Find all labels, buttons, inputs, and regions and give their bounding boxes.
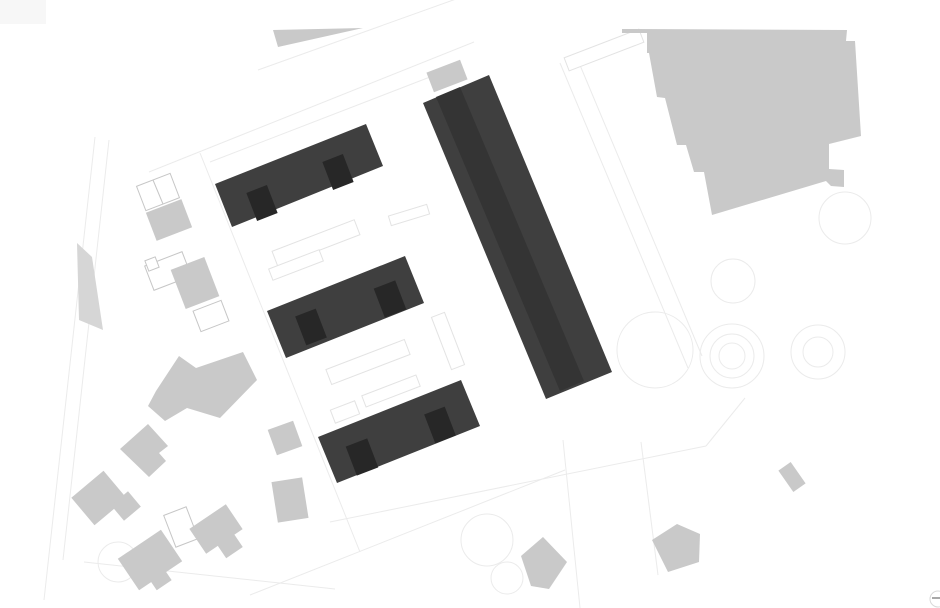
corner-patch: [0, 0, 46, 24]
site-plan-page: [0, 0, 940, 608]
site-plan-map: [0, 0, 940, 608]
zoom-out-control[interactable]: [930, 591, 940, 607]
